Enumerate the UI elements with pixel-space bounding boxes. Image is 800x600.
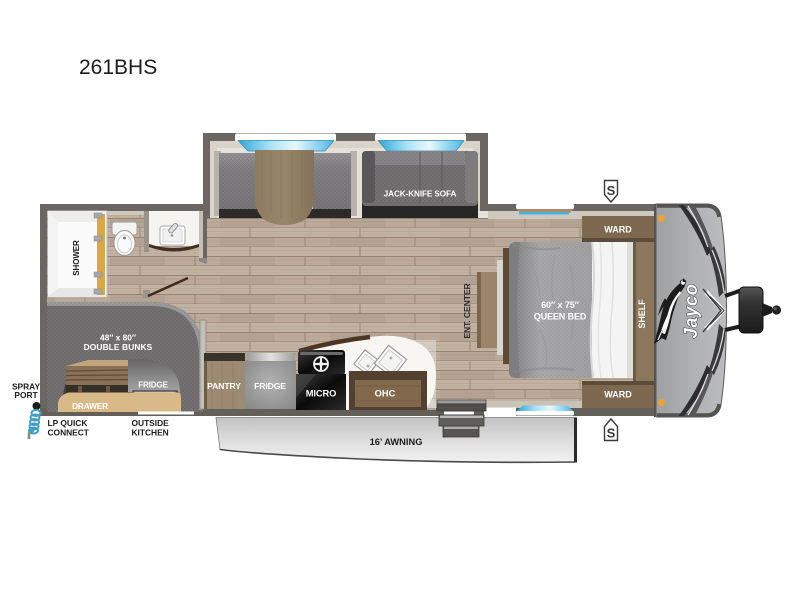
svg-text:JACK-KNIFE SOFA: JACK-KNIFE SOFA [384, 190, 457, 199]
svg-text:OHC: OHC [375, 389, 396, 399]
svg-text:WARD: WARD [604, 225, 632, 235]
svg-text:FRIDGE: FRIDGE [138, 381, 168, 390]
svg-text:LP QUICK: LP QUICK [48, 418, 88, 428]
svg-text:PANTRY: PANTRY [207, 381, 241, 391]
svg-text:60″ x 75″: 60″ x 75″ [541, 300, 580, 310]
svg-text:SHOWER: SHOWER [72, 240, 81, 276]
svg-text:DRAWER: DRAWER [72, 402, 108, 411]
svg-text:Jayco: Jayco [680, 284, 701, 339]
svg-text:SHELF: SHELF [637, 299, 647, 329]
svg-text:CONNECT: CONNECT [48, 428, 90, 438]
svg-text:S: S [607, 426, 616, 441]
svg-text:PORT: PORT [14, 390, 38, 400]
svg-text:MICRO: MICRO [306, 389, 337, 399]
svg-text:ENT. CENTER: ENT. CENTER [462, 282, 472, 338]
svg-text:16’ AWNING: 16’ AWNING [370, 437, 423, 447]
svg-text:DOUBLE BUNKS: DOUBLE BUNKS [84, 342, 153, 352]
svg-text:WARD: WARD [604, 390, 632, 400]
svg-text:261BHS: 261BHS [79, 56, 157, 79]
svg-text:QUEEN BED: QUEEN BED [534, 312, 587, 322]
svg-text:KITCHEN: KITCHEN [132, 428, 169, 438]
svg-text:OUTSIDE: OUTSIDE [132, 418, 170, 428]
svg-text:48″ x 80″: 48″ x 80″ [100, 333, 136, 343]
svg-text:S: S [607, 183, 616, 198]
svg-text:FRIDGE: FRIDGE [254, 381, 286, 391]
